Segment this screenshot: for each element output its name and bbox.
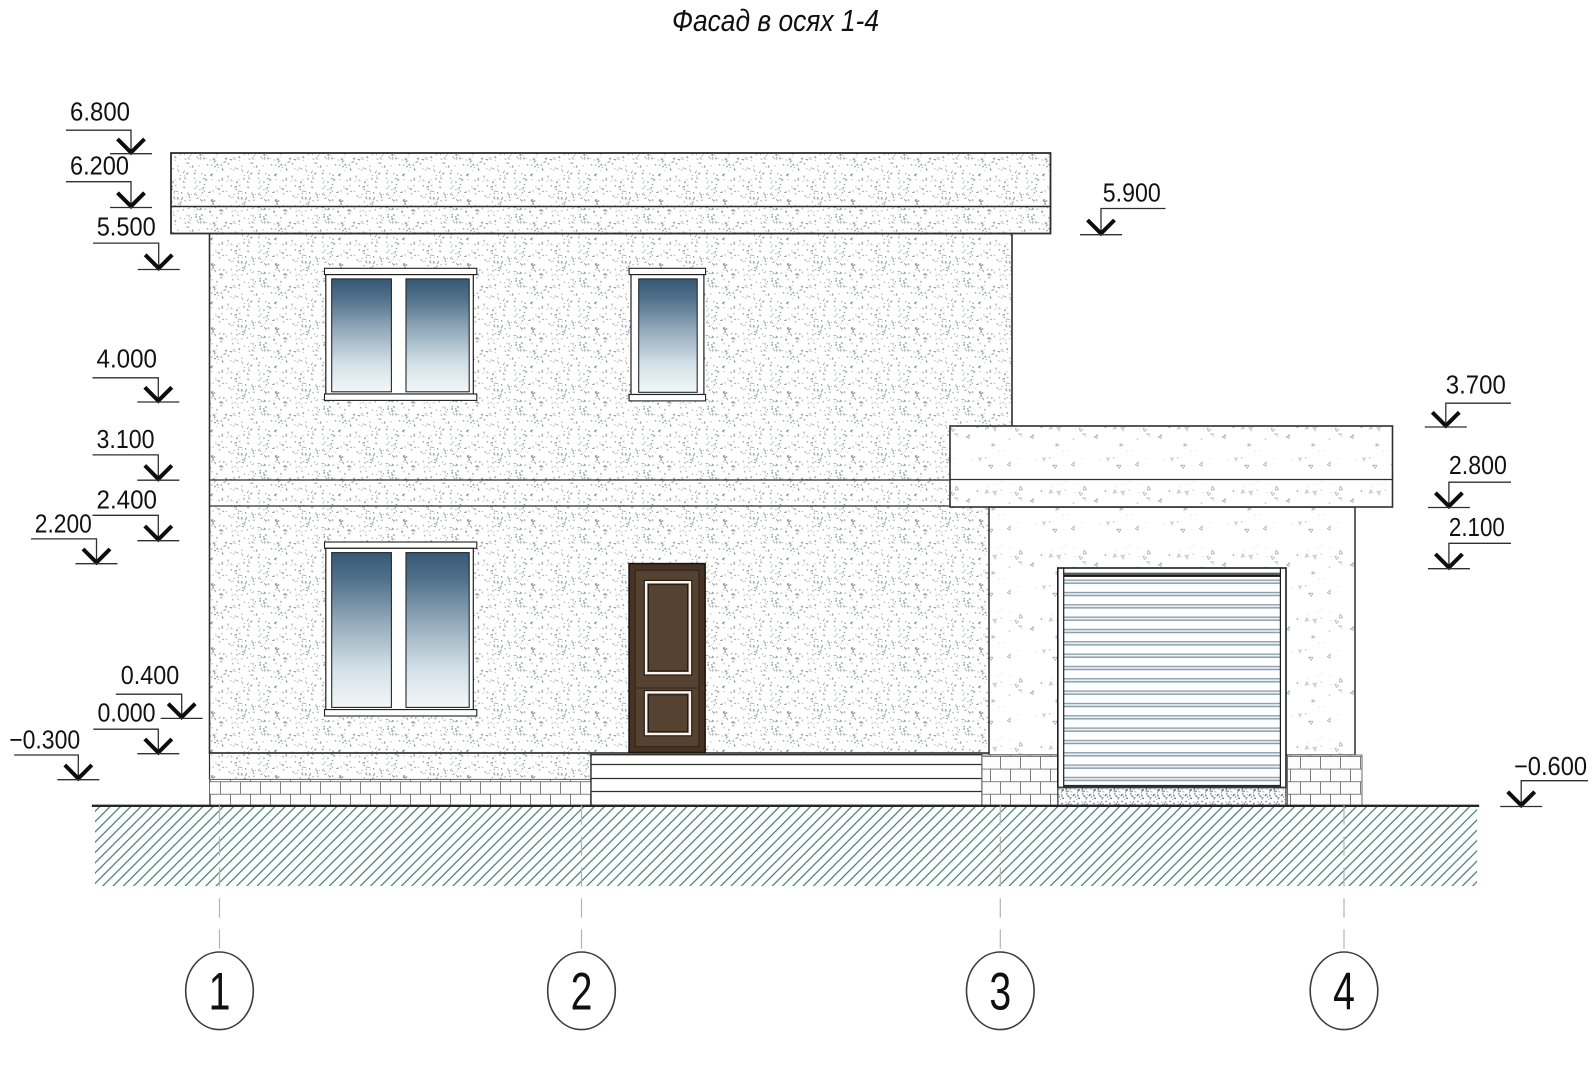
svg-text:2: 2 — [571, 962, 593, 1021]
svg-text:5.500: 5.500 — [97, 212, 156, 242]
svg-text:2.400: 2.400 — [97, 485, 158, 515]
svg-text:5.900: 5.900 — [1103, 177, 1161, 207]
svg-text:1: 1 — [209, 962, 231, 1021]
svg-text:3.100: 3.100 — [97, 424, 155, 454]
svg-text:−0.600: −0.600 — [1514, 751, 1587, 781]
svg-text:−0.300: −0.300 — [9, 724, 80, 754]
svg-text:4.000: 4.000 — [97, 344, 158, 374]
svg-text:Фасад в осях 1-4: Фасад в осях 1-4 — [672, 4, 879, 38]
svg-text:2.100: 2.100 — [1449, 512, 1505, 542]
svg-text:2.800: 2.800 — [1449, 450, 1507, 480]
svg-text:2.200: 2.200 — [35, 509, 92, 539]
svg-text:6.200: 6.200 — [70, 151, 129, 181]
svg-text:0.400: 0.400 — [121, 660, 179, 690]
svg-text:6.800: 6.800 — [70, 97, 130, 127]
svg-text:0.000: 0.000 — [98, 698, 156, 728]
svg-text:3.700: 3.700 — [1446, 370, 1506, 400]
svg-text:3: 3 — [989, 962, 1011, 1021]
svg-text:4: 4 — [1333, 962, 1355, 1021]
